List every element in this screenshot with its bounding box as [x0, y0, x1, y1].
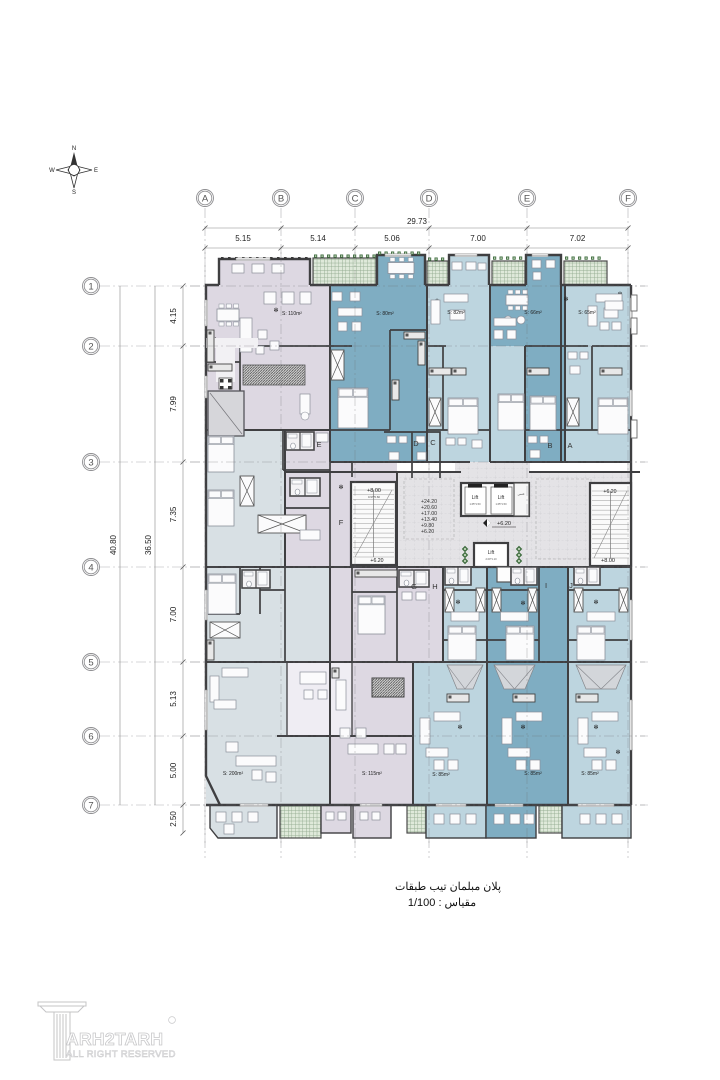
- svg-text:36.50: 36.50: [144, 534, 153, 555]
- svg-text:+6.20: +6.20: [370, 558, 383, 564]
- svg-text:Lift: Lift: [498, 495, 505, 501]
- svg-text:✻: ✻: [593, 724, 598, 731]
- svg-text:6: 6: [88, 732, 93, 743]
- svg-text:4: 4: [88, 563, 93, 574]
- svg-text:F: F: [339, 518, 344, 527]
- svg-text:E: E: [94, 168, 98, 174]
- svg-text:S: 115m²: S: 115m²: [362, 771, 382, 777]
- svg-text:Lift: Lift: [488, 550, 495, 556]
- svg-text:W: W: [49, 168, 55, 174]
- svg-text:E: E: [524, 194, 530, 205]
- svg-text:S: S: [72, 190, 76, 196]
- svg-text:N: N: [72, 146, 76, 152]
- svg-text:7: 7: [88, 801, 93, 812]
- svg-text:5: 5: [88, 658, 93, 669]
- svg-text:I: I: [545, 581, 547, 590]
- svg-text:✻: ✻: [520, 724, 525, 731]
- svg-text:+6.20: +6.20: [421, 529, 434, 535]
- svg-text:H: H: [432, 582, 437, 591]
- svg-text:S: 80m²: S: 80m²: [376, 311, 394, 317]
- svg-text:S: 85m²: S: 85m²: [432, 772, 450, 778]
- svg-text:7.99: 7.99: [169, 396, 178, 412]
- svg-text:✻: ✻: [273, 307, 278, 314]
- svg-text:S: 82m²: S: 82m²: [447, 310, 465, 316]
- svg-text:7.02: 7.02: [570, 234, 586, 243]
- svg-text:✻: ✻: [563, 296, 568, 303]
- svg-text:پلان مبلمان تيب طبقات: پلان مبلمان تيب طبقات: [395, 881, 501, 893]
- svg-text:7.00: 7.00: [169, 606, 178, 622]
- svg-text:✻: ✻: [593, 599, 598, 606]
- svg-text:Lift: Lift: [472, 495, 479, 501]
- svg-text:ALL RIGHT RESERVED: ALL RIGHT RESERVED: [66, 1049, 176, 1060]
- svg-text:J: J: [569, 581, 573, 590]
- svg-text:+6.20: +6.20: [497, 521, 511, 527]
- svg-text:0.97*0.60: 0.97*0.60: [368, 495, 380, 499]
- svg-text:2: 2: [88, 342, 93, 353]
- svg-text:C: C: [352, 194, 359, 205]
- svg-text:7.35: 7.35: [169, 506, 178, 522]
- svg-text:+6.20: +6.20: [603, 489, 616, 495]
- svg-text:✻: ✻: [338, 484, 343, 491]
- svg-text:B: B: [547, 441, 552, 450]
- svg-text:B: B: [278, 194, 284, 205]
- svg-text:S: 65m²: S: 65m²: [578, 310, 596, 316]
- svg-text:5.06: 5.06: [384, 234, 400, 243]
- svg-text:C: C: [430, 438, 436, 447]
- svg-text:1: 1: [88, 282, 93, 293]
- svg-text:40.80: 40.80: [109, 534, 118, 555]
- svg-text:F: F: [625, 194, 631, 205]
- svg-text:A: A: [567, 441, 572, 450]
- svg-text:1.65*1.50: 1.65*1.50: [469, 502, 481, 506]
- svg-text:29.73: 29.73: [407, 217, 428, 226]
- svg-text:5.00: 5.00: [169, 762, 178, 778]
- svg-text:+8.00: +8.00: [367, 488, 381, 494]
- svg-text:✻: ✻: [615, 749, 620, 756]
- svg-text:قفس: قفس: [518, 492, 525, 496]
- svg-text:✻: ✻: [455, 599, 460, 606]
- svg-text:S: 200m²: S: 200m²: [223, 771, 244, 777]
- svg-text:G: G: [411, 582, 417, 591]
- svg-text:E: E: [316, 440, 321, 449]
- svg-text:✻: ✻: [457, 724, 462, 731]
- svg-text:2.00*1.10: 2.00*1.10: [485, 557, 497, 561]
- svg-text:5.15: 5.15: [235, 234, 251, 243]
- svg-text:مقياس : 1/100: مقياس : 1/100: [408, 897, 476, 909]
- svg-text:5.14: 5.14: [310, 234, 326, 243]
- svg-text:A: A: [202, 194, 209, 205]
- svg-text:D: D: [426, 194, 433, 205]
- svg-text:+8.00: +8.00: [601, 558, 615, 564]
- svg-text:S: 110m²: S: 110m²: [282, 311, 302, 317]
- svg-text:3: 3: [88, 458, 93, 469]
- svg-text:7.00: 7.00: [470, 234, 486, 243]
- svg-text:✻: ✻: [520, 600, 525, 607]
- svg-text:2.50: 2.50: [169, 811, 178, 827]
- svg-text:1.65*1.50: 1.65*1.50: [495, 502, 507, 506]
- svg-text:ARH2TARH: ARH2TARH: [66, 1029, 163, 1049]
- svg-text:5.13: 5.13: [169, 691, 178, 707]
- svg-text:S: 85m²: S: 85m²: [581, 771, 599, 777]
- svg-text:4.15: 4.15: [169, 308, 178, 324]
- svg-text:D: D: [413, 439, 419, 448]
